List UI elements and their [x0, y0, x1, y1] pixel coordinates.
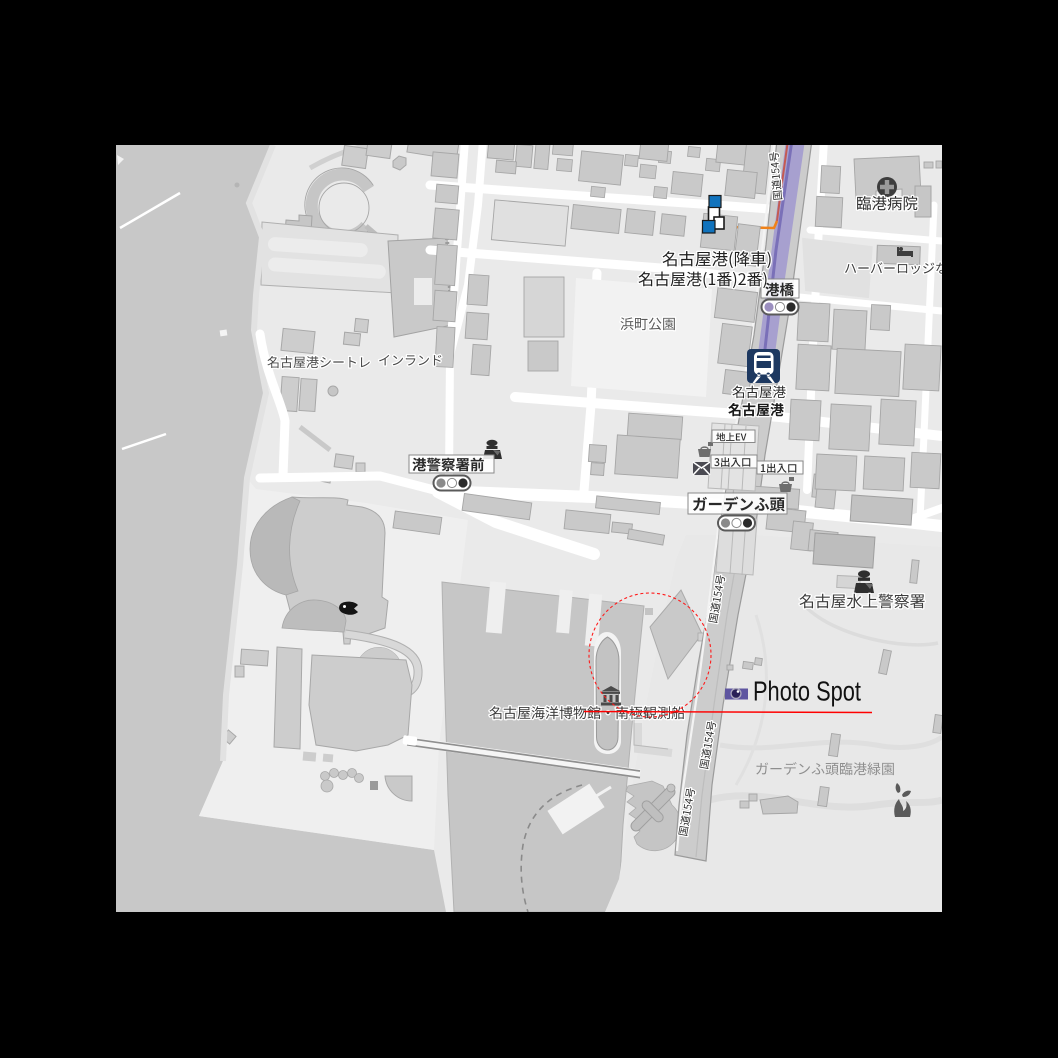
svg-text:Photo Spot: Photo Spot [753, 676, 861, 707]
